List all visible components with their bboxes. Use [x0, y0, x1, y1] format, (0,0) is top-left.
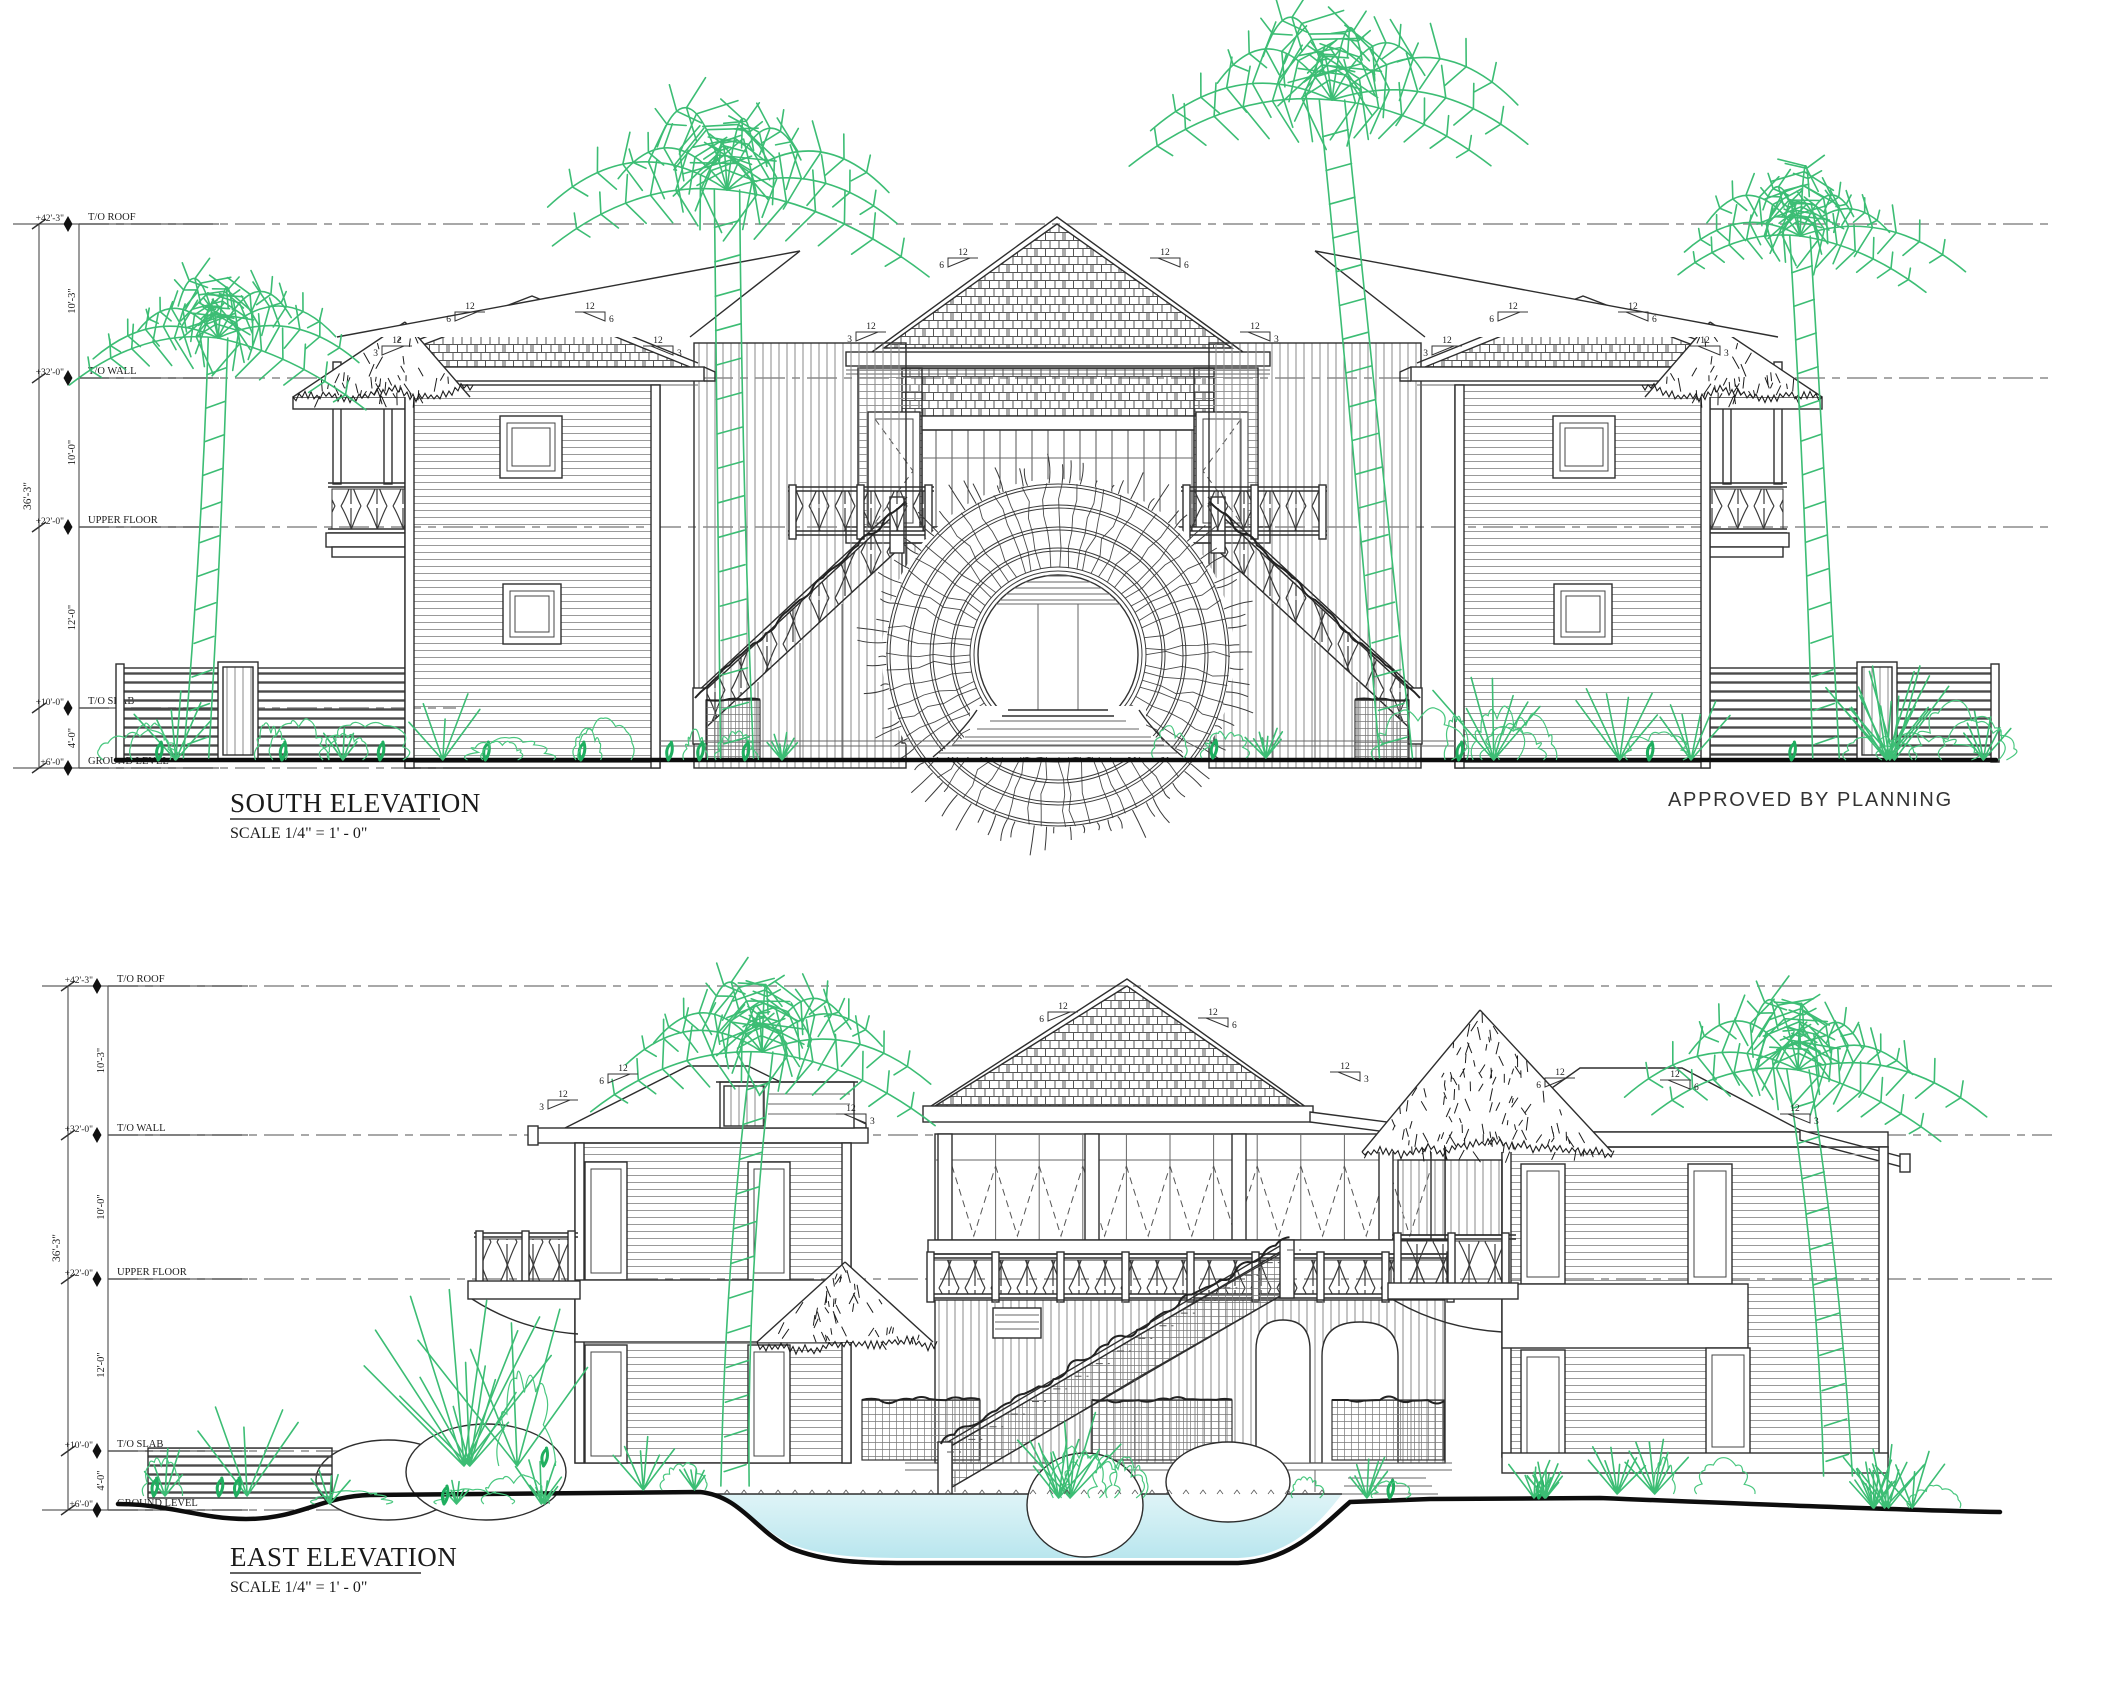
- level-label: T/O ROOF: [88, 212, 136, 223]
- svg-text:12: 12: [1058, 1002, 1068, 1012]
- south-title: SOUTH ELEVATION: [230, 788, 481, 818]
- mesh-fence-c: [1332, 1400, 1444, 1460]
- level-elevation: +42'-3": [36, 214, 64, 224]
- svg-text:12: 12: [846, 1104, 856, 1114]
- grotto-arch-left: [1256, 1320, 1310, 1463]
- right-window-lower-a: [1521, 1350, 1565, 1460]
- slope-marker: 123: [1330, 1062, 1369, 1085]
- svg-text:12: 12: [465, 302, 475, 312]
- east-elevation: T/O ROOF+42'-3"T/O WALL+32'-0"UPPER FLOO…: [42, 958, 2052, 1597]
- east-central-block: [862, 979, 1454, 1494]
- slope-marker: 126: [1150, 248, 1189, 271]
- left-window-upper-a: [585, 1162, 627, 1280]
- svg-text:6: 6: [1039, 1015, 1044, 1025]
- tower-window-upper: [500, 416, 562, 478]
- east-left-block: [468, 1066, 868, 1463]
- level-elevation: +6'-0": [40, 758, 64, 768]
- svg-text:6: 6: [599, 1077, 604, 1087]
- slope-marker: 123: [1240, 322, 1279, 345]
- svg-text:3: 3: [1364, 1075, 1369, 1085]
- level-elevation: +10'-0": [36, 698, 64, 708]
- slope-marker: 126: [939, 248, 978, 271]
- level-label: T/O WALL: [117, 1123, 166, 1134]
- level-marker: [93, 1443, 102, 1459]
- svg-text:3: 3: [1724, 349, 1729, 359]
- level-marker: [64, 519, 73, 535]
- svg-text:12: 12: [1160, 248, 1170, 258]
- level-marker: [64, 216, 73, 232]
- slope-marker: 123: [539, 1090, 578, 1113]
- south-scale-note: SCALE 1/4" = 1' - 0": [230, 825, 367, 842]
- segment-dimension: 4'-0": [96, 1470, 107, 1490]
- south-main-roof-fascia: [846, 352, 1270, 366]
- svg-text:3: 3: [1274, 335, 1279, 345]
- level-elevation: +32'-0": [65, 1125, 93, 1135]
- level-elevation: +22'-0": [65, 1269, 93, 1279]
- east-title: EAST ELEVATION: [230, 1542, 457, 1572]
- right-window-upper-a: [1521, 1164, 1565, 1284]
- level-marker: [93, 1502, 102, 1518]
- svg-text:3: 3: [539, 1103, 544, 1113]
- svg-text:6: 6: [609, 315, 614, 325]
- east-scale-note: SCALE 1/4" = 1' - 0": [230, 1579, 367, 1596]
- east-main-roof: [935, 986, 1300, 1106]
- level-label: UPPER FLOOR: [117, 1267, 187, 1278]
- south-elevation: T/O ROOF+42'-3"T/O WALL+32'-0"UPPER FLOO…: [13, 0, 2052, 855]
- svg-text:12: 12: [1208, 1008, 1218, 1018]
- overall-dimension: 36'-3": [51, 1234, 63, 1262]
- louver-vent: [993, 1308, 1041, 1338]
- svg-text:12: 12: [1250, 322, 1260, 332]
- level-elevation: +42'-3": [65, 976, 93, 986]
- svg-text:12: 12: [1442, 336, 1452, 346]
- svg-text:6: 6: [1652, 315, 1657, 325]
- level-marker: [93, 978, 102, 994]
- elevation-drawing-sheet: T/O ROOF+42'-3"T/O WALL+32'-0"UPPER FLOO…: [0, 0, 2116, 1690]
- south-shingle-band: [902, 368, 1214, 416]
- svg-text:6: 6: [1184, 261, 1189, 271]
- svg-text:12: 12: [585, 302, 595, 312]
- segment-dimension: 10'-3": [67, 288, 78, 313]
- south-main-roof: [884, 224, 1232, 348]
- right-window-upper-b: [1688, 1164, 1732, 1284]
- thatch-roof: [337, 251, 800, 337]
- roof-deck: [716, 1082, 858, 1128]
- segment-dimension: 10'-0": [67, 440, 78, 465]
- svg-text:12: 12: [1628, 302, 1638, 312]
- svg-text:6: 6: [1232, 1021, 1237, 1031]
- overall-dimension: 36'-3": [22, 482, 34, 510]
- level-elevation: +6'-0": [69, 1500, 93, 1510]
- level-elevation: +32'-0": [36, 368, 64, 378]
- fence-gate: [218, 662, 258, 760]
- svg-text:12: 12: [392, 336, 402, 346]
- slope-marker: 123: [847, 322, 886, 345]
- segment-dimension: 12'-0": [67, 605, 78, 630]
- svg-text:3: 3: [870, 1117, 875, 1127]
- svg-text:3: 3: [677, 349, 682, 359]
- svg-text:12: 12: [1700, 336, 1710, 346]
- segment-dimension: 12'-0": [96, 1352, 107, 1377]
- level-marker: [64, 760, 73, 776]
- svg-text:3: 3: [1814, 1117, 1819, 1127]
- drawing-canvas: T/O ROOF+42'-3"T/O WALL+32'-0"UPPER FLOO…: [0, 0, 2116, 1690]
- svg-text:3: 3: [373, 349, 378, 359]
- svg-text:3: 3: [847, 335, 852, 345]
- svg-text:12: 12: [558, 1090, 568, 1100]
- svg-text:12: 12: [1790, 1104, 1800, 1114]
- level-label: T/O ROOF: [117, 974, 165, 985]
- svg-text:12: 12: [1555, 1068, 1565, 1078]
- svg-text:12: 12: [1670, 1070, 1680, 1080]
- tower-window-lower: [503, 584, 561, 644]
- svg-text:12: 12: [866, 322, 876, 332]
- left-window-lower-a: [585, 1345, 627, 1463]
- level-marker: [64, 700, 73, 716]
- svg-text:6: 6: [446, 315, 451, 325]
- level-marker: [93, 1127, 102, 1143]
- segment-dimension: 10'-3": [96, 1048, 107, 1073]
- segment-dimension: 4'-0": [67, 728, 78, 748]
- level-elevation: +22'-0": [36, 517, 64, 527]
- svg-text:12: 12: [1340, 1062, 1350, 1072]
- svg-text:6: 6: [939, 261, 944, 271]
- right-window-lower-b: [1706, 1348, 1750, 1454]
- level-label: UPPER FLOOR: [88, 515, 158, 526]
- svg-text:12: 12: [1508, 302, 1518, 312]
- svg-text:6: 6: [1694, 1083, 1699, 1093]
- svg-text:3: 3: [1423, 349, 1428, 359]
- svg-text:12: 12: [958, 248, 968, 258]
- svg-text:6: 6: [1489, 315, 1494, 325]
- svg-text:12: 12: [618, 1064, 628, 1074]
- level-elevation: +10'-0": [65, 1441, 93, 1451]
- svg-text:6: 6: [1536, 1081, 1541, 1091]
- level-marker: [93, 1271, 102, 1287]
- slope-marker: 126: [1198, 1008, 1237, 1031]
- approved-stamp: APPROVED BY PLANNING: [1668, 789, 1953, 811]
- upper-balcony-railing: [788, 485, 934, 539]
- svg-text:12: 12: [653, 336, 663, 346]
- segment-dimension: 10'-0": [96, 1194, 107, 1219]
- left-window-lower-b: [748, 1345, 790, 1463]
